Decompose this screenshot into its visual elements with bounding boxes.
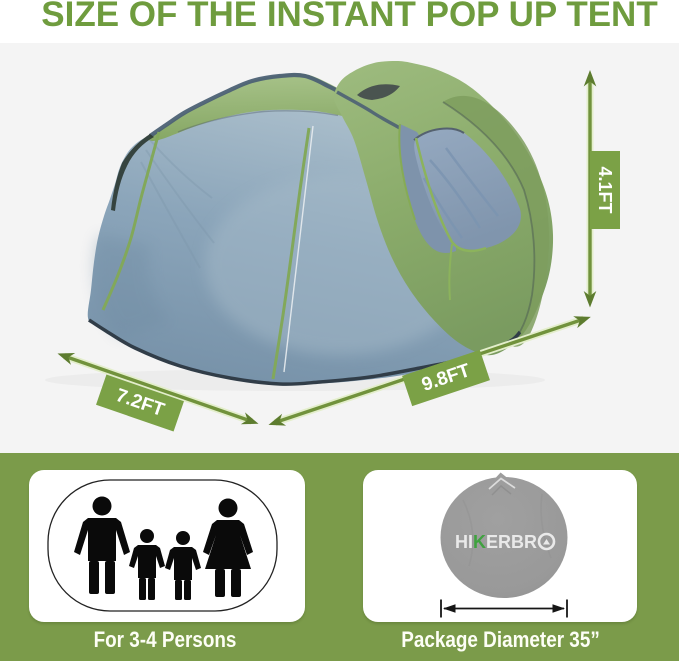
svg-text:4.1FT: 4.1FT <box>595 166 615 213</box>
svg-text:HIKERBR: HIKERBR <box>455 532 537 552</box>
